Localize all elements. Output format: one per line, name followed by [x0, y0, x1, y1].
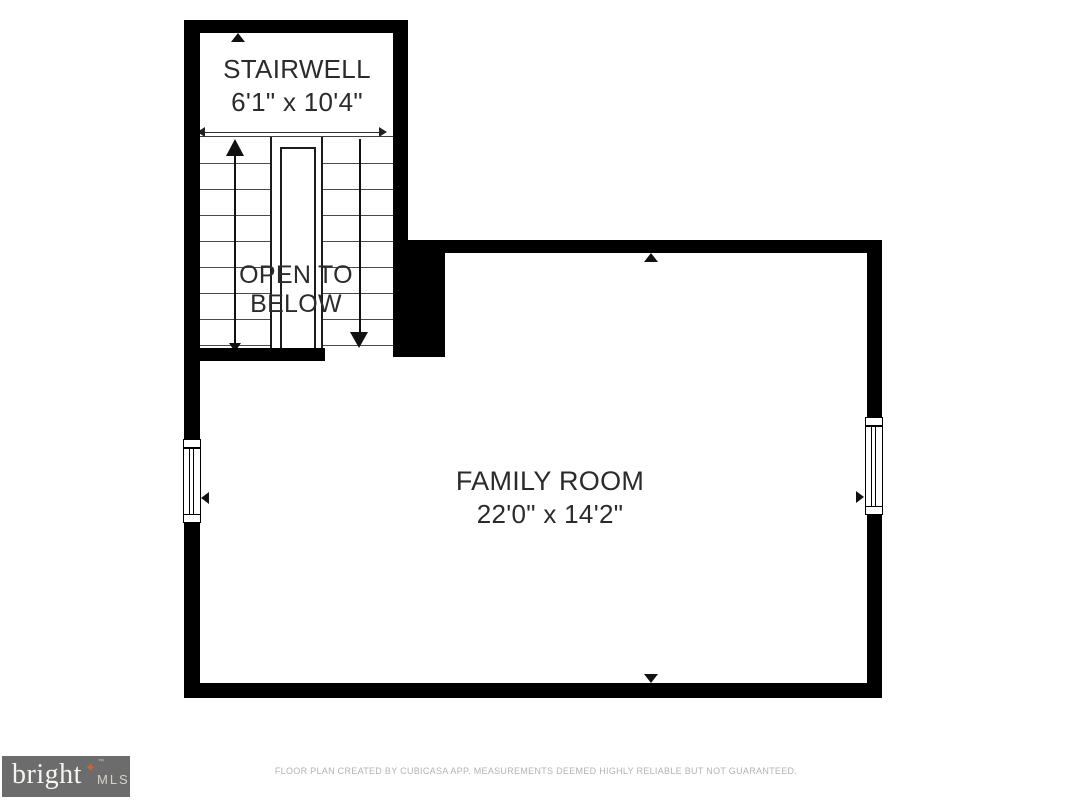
logo-trademark: ™ [98, 759, 104, 765]
right-wall-window [865, 417, 883, 515]
stairwell-bottom-wall [184, 348, 325, 361]
stairwell-familyroom-junction-wall [393, 240, 445, 357]
logo-mls-text: MLS [97, 772, 130, 787]
stair-down-arrow-icon [350, 332, 368, 348]
window-glass-line [871, 426, 876, 506]
familyroom-top-wall [445, 240, 882, 253]
window-glass-line [189, 448, 194, 514]
disclaimer-text: FLOOR PLAN CREATED BY CUBICASA APP. MEAS… [250, 766, 822, 776]
logo-star-icon: ✦ [85, 760, 96, 776]
right-window-marker-icon [856, 491, 864, 503]
stairwell-label: STAIRWELL [200, 54, 394, 85]
left-window-marker-icon [201, 492, 209, 504]
familyroom-top-opening-marker-icon [644, 253, 658, 262]
logo-brand-text: bright [12, 759, 82, 791]
stairwell-right-wall [393, 20, 408, 240]
open-to-below-label: OPEN TO BELOW [196, 261, 396, 319]
family-room-dimensions: 22'0" x 14'2" [250, 499, 850, 530]
measure-arrow-right-icon [379, 127, 387, 137]
familyroom-bottom-wall [184, 683, 882, 698]
stairwell-dimensions: 6'1" x 10'4" [200, 87, 394, 118]
stairwell-measure-line [203, 132, 381, 133]
stair-up-arrow-icon [226, 139, 244, 156]
family-room-label: FAMILY ROOM [250, 466, 850, 497]
left-wall-window [183, 439, 201, 523]
stairwell-top-wall [184, 20, 408, 33]
familyroom-bottom-opening-marker-icon [644, 674, 658, 683]
floor-plan-canvas: STAIRWELL 6'1" x 10'4" OPEN TO BELOW FAM… [0, 0, 1067, 800]
window-frame-line [865, 506, 883, 508]
stairwell-top-opening-marker-icon [231, 33, 245, 42]
brightmls-logo: bright ✦ ™ MLS [2, 756, 130, 797]
window-frame-line [183, 514, 201, 516]
